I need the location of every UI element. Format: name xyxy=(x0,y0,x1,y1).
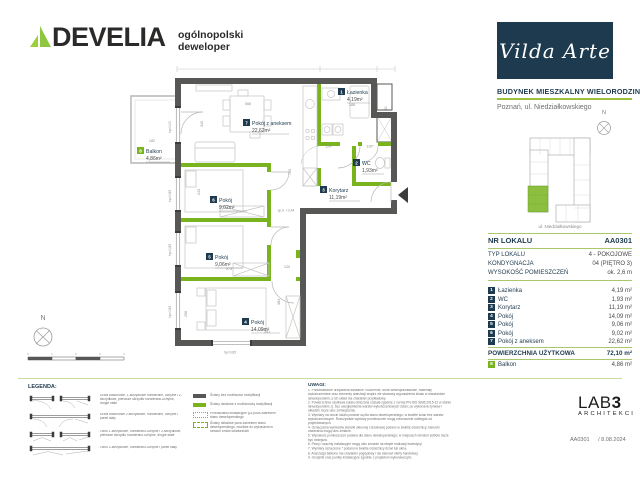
unit-number-row: NR LOKALU AA0301 xyxy=(488,236,632,245)
table-line xyxy=(488,280,632,281)
site-plan-street-caption: ul. Niedziałkowskiego xyxy=(520,224,600,229)
svg-text:22,62m²: 22,62m² xyxy=(252,128,271,134)
room-label-pokoj4: 4 Pokój 14,09m² xyxy=(242,318,280,333)
legend-wall-desc-2: Ściany działowe z możliwością modyfikacj… xyxy=(210,403,287,407)
header-divider xyxy=(497,98,632,100)
svg-text:Pokój: Pokój xyxy=(251,320,264,326)
svg-text:5: 5 xyxy=(208,254,211,259)
svg-text:2: 2 xyxy=(355,160,358,165)
doors xyxy=(181,112,391,303)
north-compass-plan: N xyxy=(34,315,52,346)
unit-number-label: NR LOKALU xyxy=(488,236,532,245)
table-line xyxy=(488,359,632,360)
balcony-row: 8 Balkon 4,86 m² xyxy=(488,362,632,371)
svg-text:hp=0,00: hp=0,00 xyxy=(168,121,172,133)
legend-window-desc-3: Okno 1-skrzydłowe, rozwierano-uchylne i … xyxy=(100,430,183,438)
svg-text:4,86m²: 4,86m² xyxy=(146,156,162,162)
svg-text:WC: WC xyxy=(362,161,371,167)
legend-wall-desc-1: Ściany bez możliwości modyfikacji xyxy=(210,394,287,398)
legend-symbol-window1 xyxy=(30,432,90,441)
svg-text:4: 4 xyxy=(244,319,247,324)
legend-wall-swatch-installation xyxy=(193,412,208,418)
svg-text:763: 763 xyxy=(288,169,292,175)
svg-text:60: 60 xyxy=(384,106,388,110)
svg-text:hp=0,85: hp=0,85 xyxy=(168,244,172,256)
svg-text:0: 0 xyxy=(27,352,29,356)
room-label-balkon: 8 Balkon 4,86m² xyxy=(137,147,170,162)
table-line xyxy=(488,347,632,348)
svg-text:383: 383 xyxy=(277,299,281,305)
doc-reference: AA0301 / 8.08.2024 xyxy=(570,437,633,443)
legend-window-desc-4: Okno 2-skrzydłowe, rozwierano-uchylne i … xyxy=(100,446,183,450)
brand-tagline: ogólnopolski deweloper xyxy=(178,29,268,53)
site-plan xyxy=(528,138,590,222)
svg-text:110*: 110* xyxy=(366,145,374,149)
svg-text:1,93m²: 1,93m² xyxy=(362,168,378,174)
total-area-row: POWIERZCHNIA UŻYTKOWA 72,10 m² xyxy=(488,350,632,359)
svg-text:188: 188 xyxy=(349,103,355,107)
site-plan-unit-highlight xyxy=(528,186,548,212)
room-label-lazienka: 1 Łazienka 4,19m² xyxy=(338,88,370,103)
svg-text:Pokój z aneksem: Pokój z aneksem xyxy=(252,121,292,127)
project-logo: Vilda Arte xyxy=(497,22,613,79)
svg-text:1: 1 xyxy=(340,89,343,94)
svg-text:9,02m²: 9,02m² xyxy=(219,205,235,211)
scale-bar: 0 1 2 3 4 xyxy=(27,352,125,360)
legend-symbol-door2 xyxy=(30,414,90,427)
unit-number-value: AA0301 xyxy=(604,236,632,245)
svg-text:243: 243 xyxy=(197,189,201,195)
footer-divider xyxy=(18,378,622,379)
entrance-arrow xyxy=(398,187,408,203)
legend-wall-swatch-structural xyxy=(193,394,206,398)
floor-plan-sheet: 1 Łazienka 4,19m² 2 WC 1,93m² 3 Korytarz… xyxy=(0,0,640,480)
legend-symbol-window2 xyxy=(30,446,90,455)
legend-symbols xyxy=(30,396,90,455)
svg-text:hp=0,85: hp=0,85 xyxy=(168,190,172,202)
room-label-pokoj5: 5 Pokój 9,06m² xyxy=(206,253,243,268)
project-address: Poznań, ul. Niedziałkowskiego xyxy=(497,104,592,111)
doc-ref-number: AA0301 xyxy=(570,437,590,443)
svg-text:6: 6 xyxy=(212,197,215,202)
legend-wall-swatch-partition xyxy=(193,403,206,407)
table-line xyxy=(488,248,632,249)
svg-text:4: 4 xyxy=(123,352,125,356)
svg-text:N: N xyxy=(602,110,606,116)
table-line xyxy=(488,233,632,234)
north-compass-header: N xyxy=(598,110,611,135)
svg-text:256: 256 xyxy=(184,311,188,317)
legend-window-desc-2: Drzwi balkonowe 2-skrzydłowe, rozwierane… xyxy=(100,413,183,421)
svg-text:2: 2 xyxy=(75,352,77,356)
svg-text:124*: 124* xyxy=(325,145,333,149)
develia-logo-icon xyxy=(30,24,52,48)
svg-text:Pokój: Pokój xyxy=(219,198,232,204)
unit-type-row: TYP LOKALU 4 - POKOJOWE xyxy=(488,252,632,261)
unit-floor-row: KONDYGNACJA 04 (PIĘTRO 3) xyxy=(488,261,632,270)
svg-text:182: 182 xyxy=(149,139,155,143)
svg-text:340: 340 xyxy=(200,121,204,127)
uwagi-title: UWAGI: xyxy=(308,383,326,388)
doc-ref-date: / 8.08.2024 xyxy=(598,437,626,443)
legend-title: LEGENDA: xyxy=(28,384,57,390)
svg-text:sp.b. +2,44: sp.b. +2,44 xyxy=(278,209,295,213)
svg-text:120: 120 xyxy=(284,265,290,269)
svg-text:Pokój: Pokój xyxy=(215,255,228,261)
svg-text:Balkon: Balkon xyxy=(146,149,162,155)
svg-text:11,19m²: 11,19m² xyxy=(329,195,347,201)
unit-height-row: WYSOKOŚĆ POMIESZCZEŃ ok. 2,6 m xyxy=(488,270,632,279)
project-name: Vilda Arte xyxy=(499,39,611,63)
legend-window-desc-1: Drzwi balkonowe, 1-skrzydłowe rozwierane… xyxy=(100,394,183,406)
svg-text:8: 8 xyxy=(139,148,142,153)
room-label-wc: 2 WC 1,93m² xyxy=(353,159,384,174)
room-label-korytarz: 3 Korytarz 11,19m² xyxy=(320,186,360,201)
svg-text:hp=0,85: hp=0,85 xyxy=(168,306,172,318)
svg-text:Korytarz: Korytarz xyxy=(329,188,349,194)
svg-text:3: 3 xyxy=(99,352,101,356)
legend-symbol-door1 xyxy=(30,396,90,409)
svg-text:373: 373 xyxy=(226,267,232,271)
uwagi-notes: 1. Przedstawione urządzenia sanitarne i … xyxy=(308,389,451,461)
architect-logo: LAB3 xyxy=(578,393,622,413)
svg-text:391: 391 xyxy=(264,330,270,334)
svg-text:hp=0,85: hp=0,85 xyxy=(224,351,236,355)
svg-text:3: 3 xyxy=(322,187,325,192)
building-type: BUDYNEK MIESZKALNY WIELORODZINNY xyxy=(497,87,640,96)
legend-wall-desc-3: Przedścianki instalacyjne g-k poza zakre… xyxy=(210,412,282,420)
svg-text:1: 1 xyxy=(51,352,53,356)
legend-wall-swatch-optional xyxy=(193,422,208,428)
svg-text:7: 7 xyxy=(245,120,248,125)
brand-name: DEVELIA xyxy=(52,22,166,53)
svg-text:Łazienka: Łazienka xyxy=(347,90,368,96)
room-label-pokoj6: 6 Pokój 9,02m² xyxy=(210,196,247,211)
architect-logo-subtitle: ARCHITEKCI xyxy=(578,411,635,417)
legend-wall-desc-4: Ściany działowe poza zakresem stanu dewe… xyxy=(210,422,284,434)
dimension-line-top xyxy=(177,66,395,72)
svg-text:N: N xyxy=(40,315,45,322)
svg-text:566: 566 xyxy=(245,102,251,106)
